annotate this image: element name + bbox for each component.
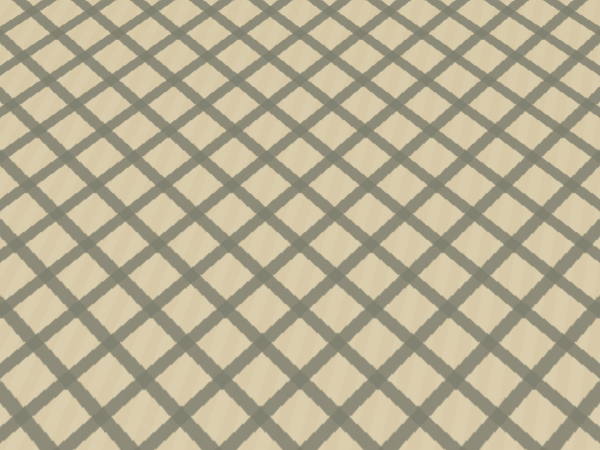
green-floor-reflection [0, 330, 140, 450]
white-hall-building [393, 292, 417, 302]
glass-sheen [70, 120, 370, 270]
pond [38, 228, 78, 246]
exhibition-hall-photo [0, 0, 600, 450]
screen-glare [508, 287, 587, 374]
kiosk-screen-bezel [500, 278, 596, 384]
brown-industrial-block [442, 305, 474, 324]
kiosk-screen[interactable] [508, 287, 587, 374]
